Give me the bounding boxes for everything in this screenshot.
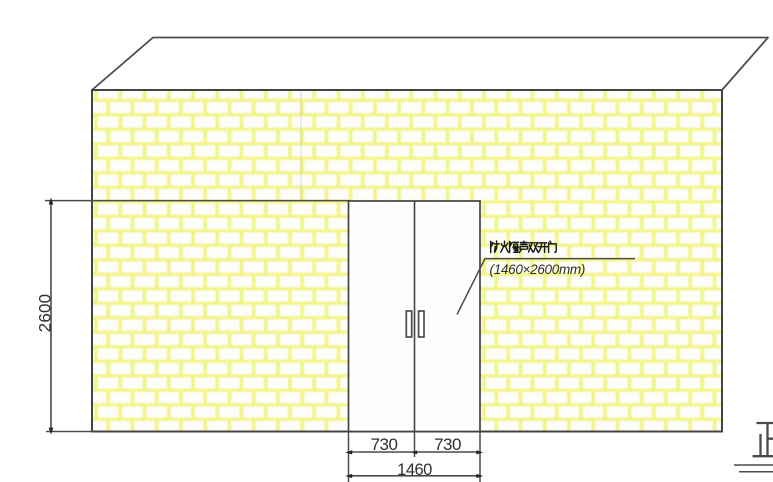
svg-text:2600: 2600 (35, 294, 54, 333)
svg-text:730: 730 (371, 435, 398, 454)
svg-text:1460: 1460 (397, 461, 432, 479)
svg-text:730: 730 (434, 435, 461, 454)
svg-text:(1460×2600mm): (1460×2600mm) (490, 262, 586, 277)
